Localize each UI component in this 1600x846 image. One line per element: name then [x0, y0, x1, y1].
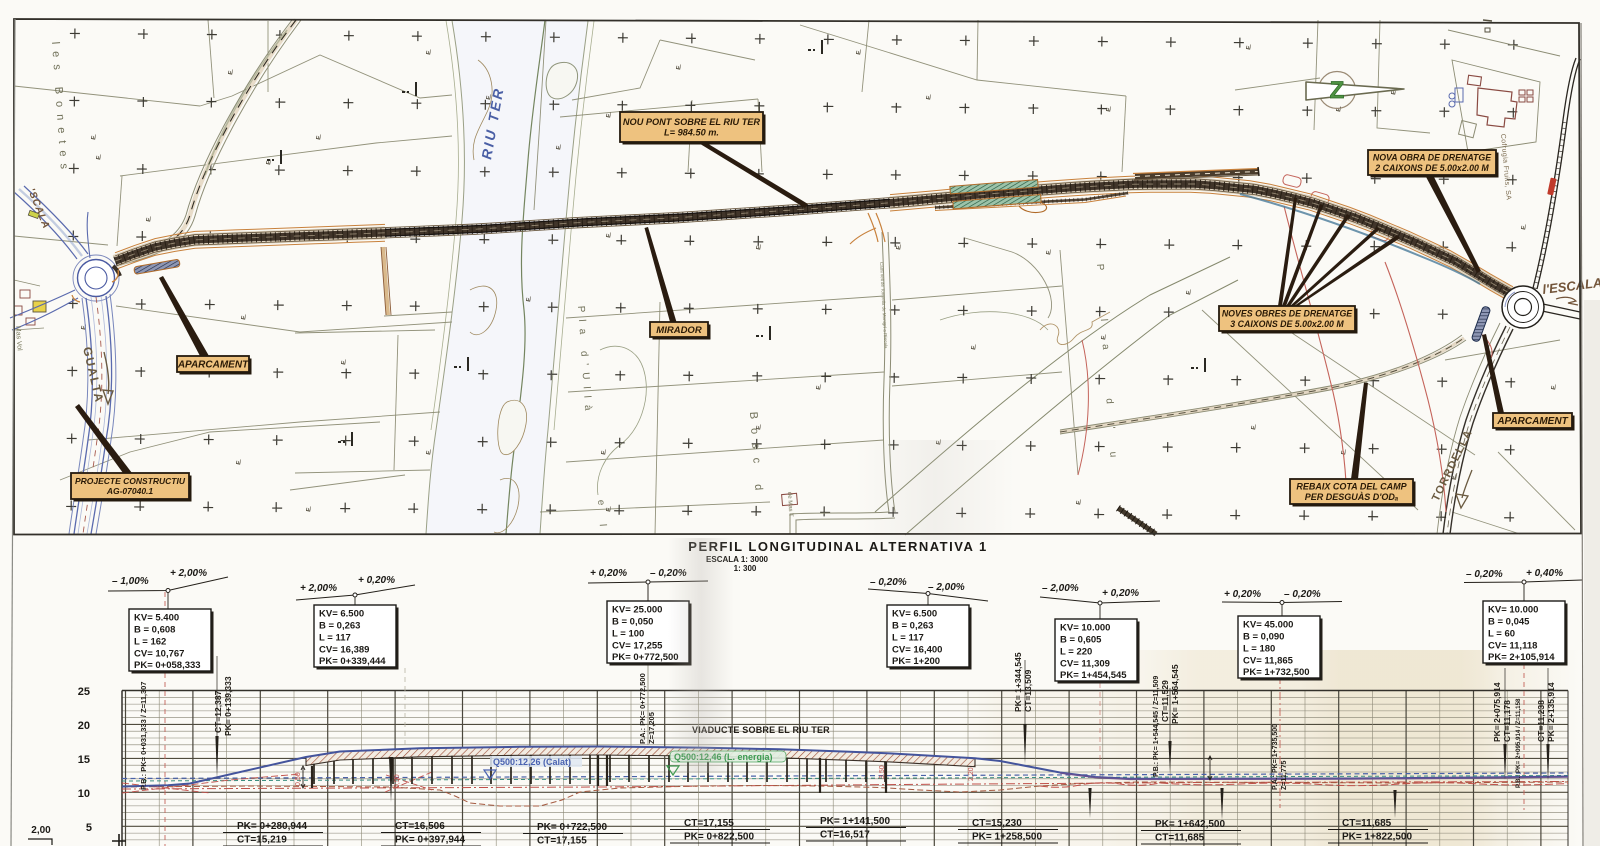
svg-text:KV= 6.500: KV= 6.500: [892, 609, 937, 620]
svg-text:– 0,20%: – 0,20%: [1284, 589, 1321, 600]
svg-text:PK= 0+822,500: PK= 0+822,500: [684, 832, 754, 843]
svg-text:CT=11,238: CT=11,238: [1536, 700, 1546, 742]
svg-text:B = 0,263: B = 0,263: [319, 621, 360, 632]
svg-text:PK= 2+075,914: PK= 2+075,914: [1492, 682, 1502, 742]
svg-text:B = 0,605: B = 0,605: [1060, 635, 1102, 646]
svg-text:CV= 11,118: CV= 11,118: [1488, 640, 1537, 651]
svg-text:CT=17,155: CT=17,155: [684, 818, 734, 829]
svg-text:NOU PONT SOBRE EL RIU TER: NOU PONT SOBRE EL RIU TER: [623, 117, 761, 127]
svg-text:PK= 2+105,914: PK= 2+105,914: [1488, 652, 1555, 663]
svg-text:L = 180: L = 180: [1243, 643, 1275, 654]
svg-text:CT=11,685: CT=11,685: [1155, 833, 1205, 844]
svg-text:+ 2,00%: + 2,00%: [300, 583, 337, 594]
svg-text:CT=13,509: CT=13,509: [1023, 669, 1033, 712]
svg-text:PK= 1+200: PK= 1+200: [892, 656, 940, 667]
svg-text:KV= 45.000: KV= 45.000: [1243, 620, 1293, 631]
svg-text:PK= 1+141,500: PK= 1+141,500: [820, 816, 890, 827]
svg-text:PK= 2+135,914: PK= 2+135,914: [1546, 682, 1556, 742]
svg-text:MIRADOR: MIRADOR: [656, 325, 702, 336]
svg-text:P.B.: PK= 0+031,333 / Z=11,: P.B.: PK= 0+031,333 / Z=11,307: [139, 682, 148, 790]
svg-text:CT=15,219: CT=15,219: [237, 835, 287, 846]
svg-text:L= 984.50 m.: L= 984.50 m.: [664, 128, 719, 138]
svg-text:CT=11,178: CT=11,178: [1502, 700, 1512, 742]
svg-text:+ 0,20%: + 0,20%: [1102, 588, 1139, 599]
svg-text:REBAIX COTA DEL CAMP: REBAIX COTA DEL CAMP: [1296, 482, 1407, 492]
svg-text:CV= 16,400: CV= 16,400: [892, 644, 942, 655]
svg-text:+ 0,20%: + 0,20%: [590, 568, 627, 579]
svg-text:Z=11,775: Z=11,775: [1281, 761, 1288, 790]
svg-text:10: 10: [78, 788, 90, 800]
svg-text:KV= 10.000: KV= 10.000: [1488, 605, 1538, 616]
svg-text:L = 220: L = 220: [1060, 646, 1092, 657]
svg-text:L = 100: L = 100: [612, 628, 644, 639]
svg-text:P.A.: PK= 1+735,500: P.A.: PK= 1+735,500: [1272, 724, 1279, 790]
svg-text:CV= 10,767: CV= 10,767: [134, 648, 184, 659]
svg-text:PER DESGUÀS D'ODₐ: PER DESGUÀS D'ODₐ: [1305, 492, 1399, 502]
svg-text:PK= 0+339,444: PK= 0+339,444: [319, 656, 386, 667]
svg-text:PK= 1+564,545: PK= 1+564,545: [1170, 664, 1180, 724]
svg-text:KV= 5.400: KV= 5.400: [134, 613, 179, 624]
svg-text:CT=16,506: CT=16,506: [395, 821, 445, 832]
svg-text:B = 0,050: B = 0,050: [612, 617, 653, 628]
svg-text:NOVA OBRA DE DRENATGE: NOVA OBRA DE DRENATGE: [1373, 153, 1492, 163]
svg-text:3,50: 3,50: [879, 765, 886, 779]
svg-text:CT=17,155: CT=17,155: [537, 836, 587, 846]
svg-text:L = 117: L = 117: [319, 632, 351, 643]
svg-text:0,50: 0,50: [295, 772, 302, 786]
svg-text:B = 0,608: B = 0,608: [134, 625, 175, 636]
svg-text:– 0,20%: – 0,20%: [870, 577, 907, 588]
svg-text:Z: Z: [1330, 77, 1345, 104]
svg-text:CV= 17,255: CV= 17,255: [612, 640, 663, 651]
svg-text:AG-07040.1: AG-07040.1: [106, 486, 154, 496]
svg-text:L = 60: L = 60: [1488, 628, 1515, 639]
svg-text:– 0,20%: – 0,20%: [1466, 569, 1503, 580]
svg-text:PK= 0+722,500: PK= 0+722,500: [537, 822, 607, 833]
svg-text:2,00: 2,00: [31, 825, 51, 836]
svg-text:PK= 0+139,333: PK= 0+139,333: [223, 676, 233, 736]
svg-text:5: 5: [86, 822, 92, 834]
svg-text:KV= 25.000: KV= 25.000: [612, 605, 662, 616]
svg-text:PK= 1+732,500: PK= 1+732,500: [1243, 667, 1310, 678]
svg-text:25: 25: [78, 686, 90, 698]
svg-text:P.B.: PK= 2+095,914 / Z=11,: P.B.: PK= 2+095,914 / Z=11,158: [1515, 698, 1522, 788]
svg-text:Q500:12,26 (Calat): Q500:12,26 (Calat): [493, 757, 571, 767]
svg-text:+ 2,00%: + 2,00%: [170, 568, 207, 579]
svg-text:PK= 1+344,545: PK= 1+344,545: [1013, 652, 1023, 712]
svg-text:CT=11,529: CT=11,529: [1160, 680, 1170, 722]
svg-text:– 1,00%: – 1,00%: [112, 576, 149, 587]
svg-text:– 2,00%: – 2,00%: [1042, 583, 1079, 594]
svg-text:PK= 0+397,944: PK= 0+397,944: [395, 835, 465, 846]
svg-text:APARCAMENT: APARCAMENT: [177, 360, 249, 371]
svg-text:L = 162: L = 162: [134, 636, 166, 647]
svg-text:P.A.: PK= 0+772,500: P.A.: PK= 0+772,500: [638, 673, 647, 744]
svg-text:2 CAIXONS DE 5.00x2.00 M: 2 CAIXONS DE 5.00x2.00 M: [1374, 163, 1489, 173]
svg-text:PK= 1+822,500: PK= 1+822,500: [1342, 832, 1412, 843]
svg-text:CT=16,517: CT=16,517: [820, 830, 870, 841]
svg-text:PROJECTE CONSTRUCTIU: PROJECTE CONSTRUCTIU: [75, 476, 186, 486]
svg-text:CV= 16,389: CV= 16,389: [319, 644, 369, 655]
svg-text:PK= 0+280,944: PK= 0+280,944: [237, 821, 307, 832]
svg-text:PK= 1+454,545: PK= 1+454,545: [1060, 670, 1127, 681]
svg-text:CT=12,387: CT=12,387: [213, 690, 223, 733]
svg-text:3 CAIXONS DE 5.00x2.00 M: 3 CAIXONS DE 5.00x2.00 M: [1230, 319, 1344, 329]
svg-text:– 2,00%: – 2,00%: [928, 582, 965, 593]
svg-text:+ 0,20%: + 0,20%: [1224, 589, 1261, 600]
svg-text:B = 0,045: B = 0,045: [1488, 617, 1530, 628]
svg-text:CV= 11,865: CV= 11,865: [1243, 655, 1294, 666]
svg-text:CT=15,230: CT=15,230: [972, 818, 1022, 829]
svg-text:NOVES OBRES DE DRENATGE: NOVES OBRES DE DRENATGE: [1222, 309, 1353, 319]
svg-text:CT=11,685: CT=11,685: [1342, 818, 1392, 829]
svg-text:P.B.: PK= 1+544,545 / Z=11: P.B.: PK= 1+544,545 / Z=11,509: [1153, 676, 1160, 777]
svg-text:CV= 11,309: CV= 11,309: [1060, 658, 1110, 669]
svg-text:B = 0,263: B = 0,263: [892, 621, 933, 632]
svg-text:+ 0,20%: + 0,20%: [358, 575, 395, 586]
svg-text:PK= 1+642,500: PK= 1+642,500: [1155, 819, 1225, 830]
svg-text:APARCAMENT: APARCAMENT: [1496, 416, 1568, 427]
svg-text:1: 300: 1: 300: [734, 564, 757, 573]
svg-text:KV= 10.000: KV= 10.000: [1060, 623, 1110, 634]
svg-text:KV= 6.500: KV= 6.500: [319, 609, 364, 620]
svg-text:0,50: 0,50: [394, 774, 401, 788]
svg-text:2,20: 2,20: [968, 767, 975, 781]
svg-text:15: 15: [78, 754, 90, 766]
svg-text:B = 0,090: B = 0,090: [1243, 632, 1284, 643]
svg-text:PK= 0+058,333: PK= 0+058,333: [134, 660, 201, 671]
svg-text:20: 20: [78, 720, 90, 732]
svg-text:PK= 1+258,500: PK= 1+258,500: [972, 832, 1042, 843]
svg-text:Z=17,205: Z=17,205: [647, 712, 656, 744]
svg-text:L = 117: L = 117: [892, 632, 924, 643]
svg-text:+ 0,40%: + 0,40%: [1526, 568, 1563, 579]
